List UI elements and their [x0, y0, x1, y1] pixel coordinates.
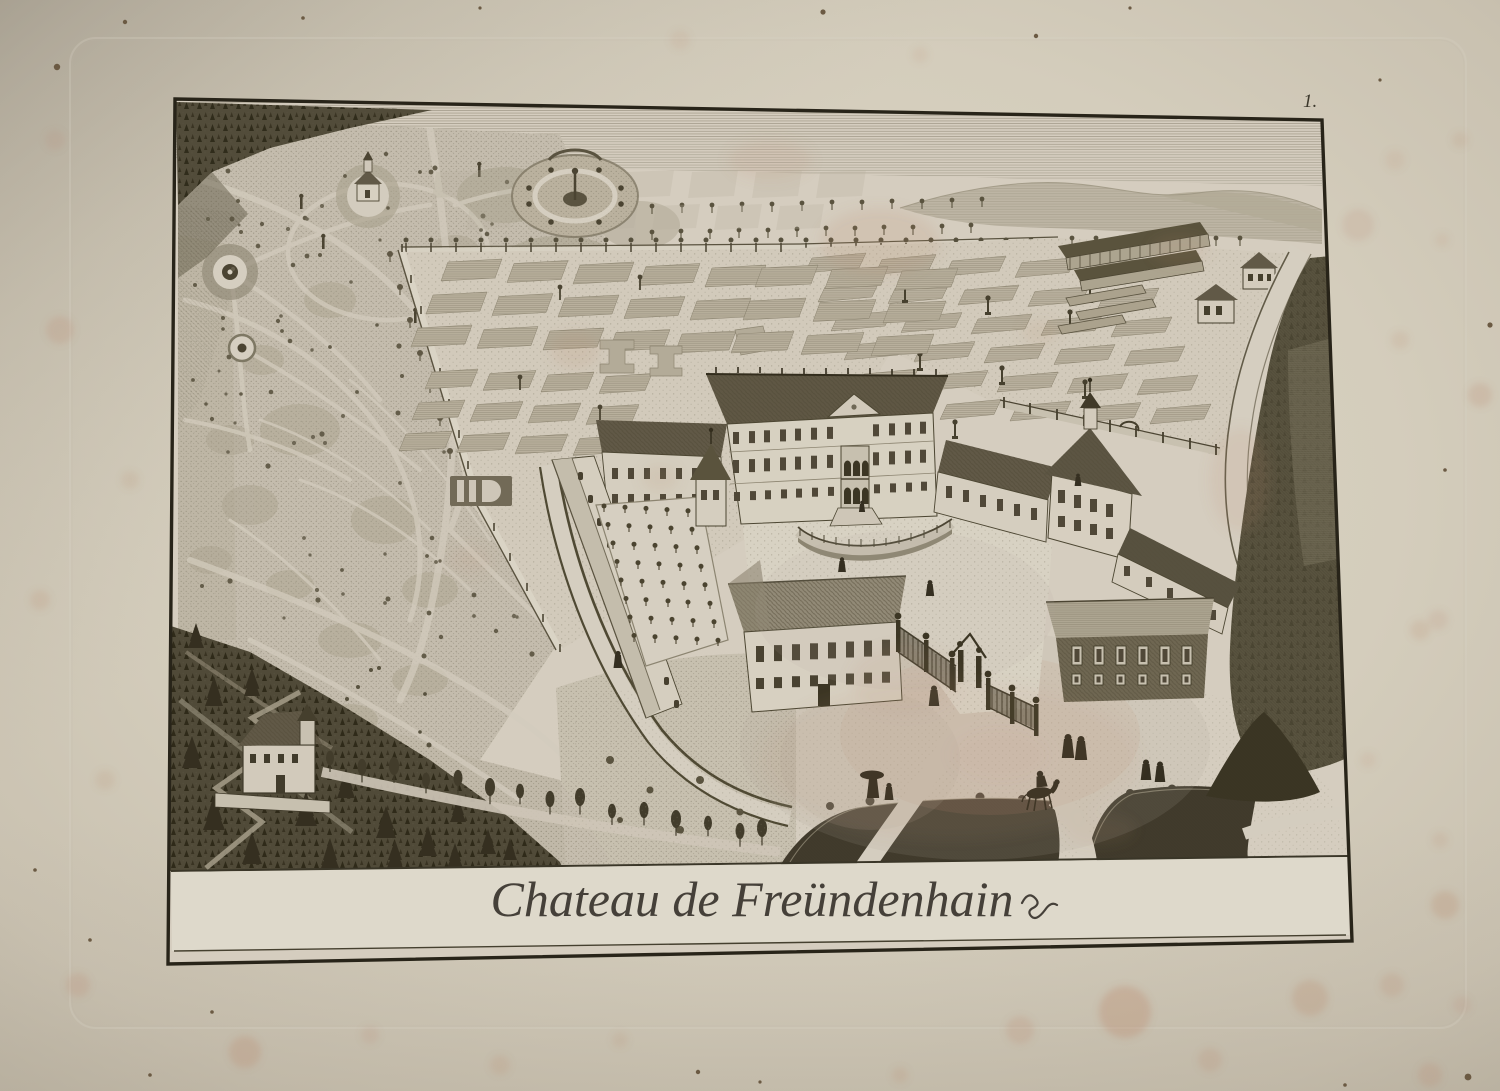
- svg-text:1.: 1.: [1303, 91, 1317, 112]
- svg-text:Chateau de Freündenhain: Chateau de Freündenhain: [490, 871, 1013, 927]
